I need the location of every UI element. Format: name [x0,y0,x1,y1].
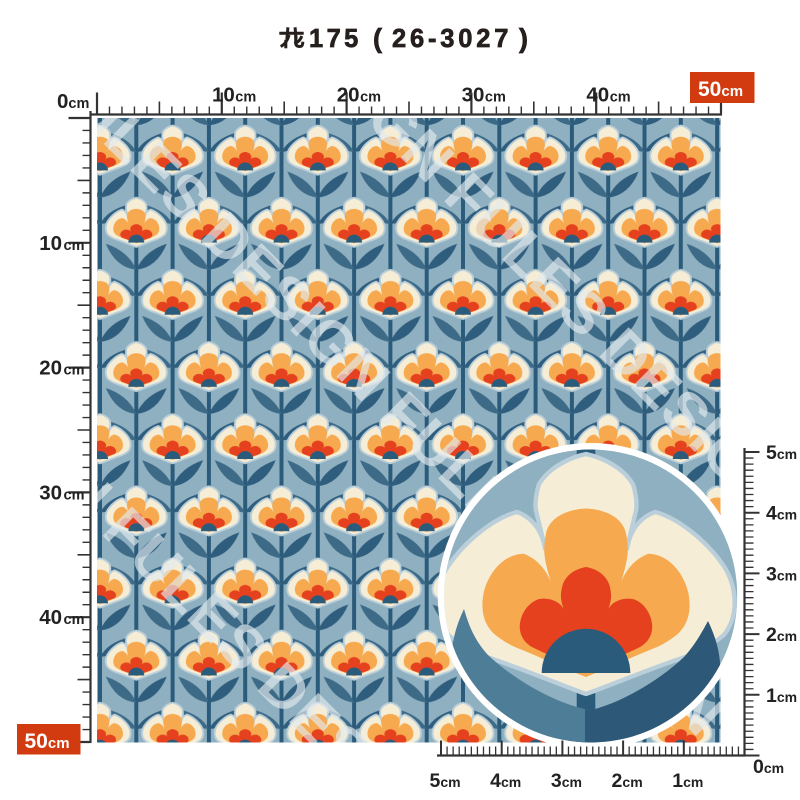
svg-text:4cm: 4cm [490,770,521,792]
svg-text:cm: cm [235,90,256,106]
svg-text:cm: cm [64,238,85,254]
svg-text:1cm: 1cm [672,770,703,792]
svg-text:cm: cm [64,612,85,628]
svg-text:175: 175 [309,25,362,53]
svg-text:30: 30 [39,481,62,504]
svg-text:10: 10 [39,232,62,255]
svg-text:20: 20 [337,84,360,107]
svg-text:(: ( [373,24,382,54]
svg-text:40: 40 [39,606,62,629]
svg-text:2cm: 2cm [612,770,643,792]
svg-text:cm: cm [610,90,631,106]
svg-text:cm: cm [64,363,85,379]
svg-text:cm: cm [64,487,85,503]
svg-text:cm: cm [485,90,506,106]
svg-text:4cm: 4cm [766,503,797,525]
svg-text:40: 40 [586,84,609,107]
svg-text:30: 30 [462,84,485,107]
svg-text:2cm: 2cm [766,624,797,646]
svg-text:): ) [519,24,528,54]
svg-text:5cm: 5cm [766,442,797,464]
svg-text:10: 10 [212,84,235,107]
svg-text:cm: cm [360,90,381,106]
svg-text:0cm: 0cm [753,756,784,778]
svg-text:26-3027: 26-3027 [392,25,512,53]
svg-text:5cm: 5cm [429,770,460,792]
svg-text:3cm: 3cm [551,770,582,792]
svg-text:3cm: 3cm [766,563,797,585]
svg-text:20: 20 [39,357,62,380]
svg-text:1cm: 1cm [766,685,797,707]
